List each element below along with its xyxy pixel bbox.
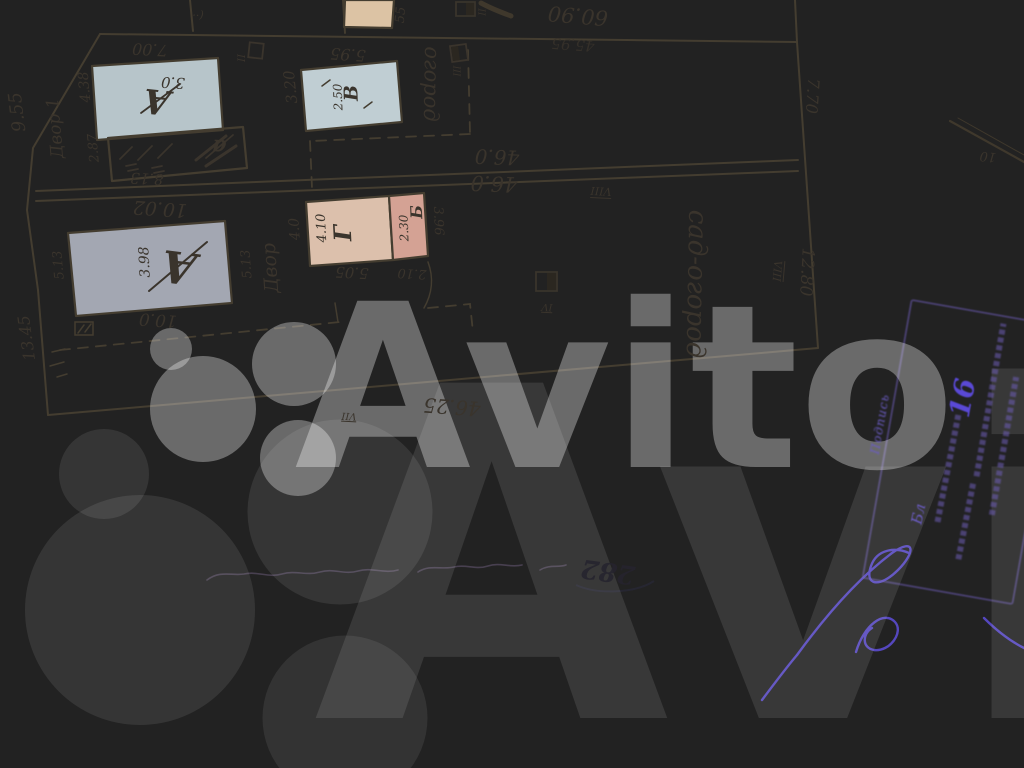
dim-13-45: 13.45	[16, 314, 38, 362]
dim-8-13: 8.13	[130, 170, 164, 187]
dim-46-0-lower: 46.0	[470, 172, 517, 195]
dim-5-95: 5.95	[330, 45, 367, 63]
stamp-number: 16	[946, 376, 980, 419]
dim-46-0-upper: 46.0	[474, 146, 519, 168]
building-b-dim: 2.30	[398, 214, 411, 241]
dim-2-10: 2.10	[397, 266, 427, 280]
area-sad-ogorod: сад-огород	[682, 210, 711, 359]
mark-square-top: II	[480, 8, 489, 15]
mark-iii: III	[455, 66, 464, 77]
building-a-lower-dim: 3.98	[137, 246, 153, 278]
dim-4-38: 4.38	[77, 71, 94, 103]
dim-46-25: 46.25	[423, 395, 482, 419]
photographed-plan-document: AvitoAvito60.9045.9555(··II7.009.55Двор …	[0, 0, 1024, 768]
dim-60-90: 60.90	[547, 2, 609, 28]
mark-10: 10	[979, 149, 997, 163]
annex-a-letter: а	[211, 135, 227, 158]
building-b-letter: Б	[409, 205, 425, 219]
area-ogorod: огород	[420, 46, 442, 122]
dim-5-13-dvor: 5.13	[240, 249, 255, 279]
dim-5-05: 5.05	[335, 264, 369, 281]
label-dvor-1: Двор 1	[45, 97, 67, 159]
dim-9-55: 9.55	[7, 91, 30, 133]
building-v-letter: В	[342, 85, 362, 102]
dim-45-95: 45.95	[551, 35, 595, 53]
stamp-bl-note: Бл	[910, 502, 929, 525]
mark-viii-right: VIII	[771, 260, 784, 282]
building-a-upper-height: 3.0	[161, 74, 186, 90]
mark-55: 55	[394, 6, 408, 24]
mark-iv: IV	[541, 301, 553, 312]
building-v-height: 2.50	[332, 83, 345, 110]
dim-7-00: 7.00	[132, 40, 168, 58]
dim-12-80: 12.80	[796, 247, 816, 296]
dim-3-20: 3.20	[282, 70, 300, 105]
mark-parens: (··	[192, 9, 204, 21]
dim-2-87: 2.87	[86, 133, 101, 163]
mark-vii: VII	[341, 410, 357, 421]
wm-dot-3	[252, 322, 336, 406]
dim-3-96: 3.96	[431, 206, 445, 235]
dim-5-13-left: 5.13	[51, 250, 66, 280]
wm-dot-2	[150, 356, 256, 462]
wm-dot-giant-2	[25, 495, 255, 725]
building-a-lower-letter: А	[159, 242, 200, 290]
mark-viii-top: VIII	[590, 185, 612, 197]
plan-labels-layer: AvitoAvito60.9045.9555(··II7.009.55Двор …	[0, 0, 1024, 768]
wm-dot-giant-3	[248, 420, 433, 605]
dim-10-0: 10.0	[139, 309, 178, 329]
dim-4-0: 4.0	[287, 217, 303, 240]
dim-10-02: 10.02	[132, 197, 188, 220]
building-g-letter: Г	[331, 224, 356, 242]
label-dvor-2: Двор	[260, 242, 282, 293]
scribble-282: 282	[579, 554, 636, 587]
mark-ii: II	[238, 54, 248, 62]
dim-7-70: 7.70	[803, 78, 821, 115]
